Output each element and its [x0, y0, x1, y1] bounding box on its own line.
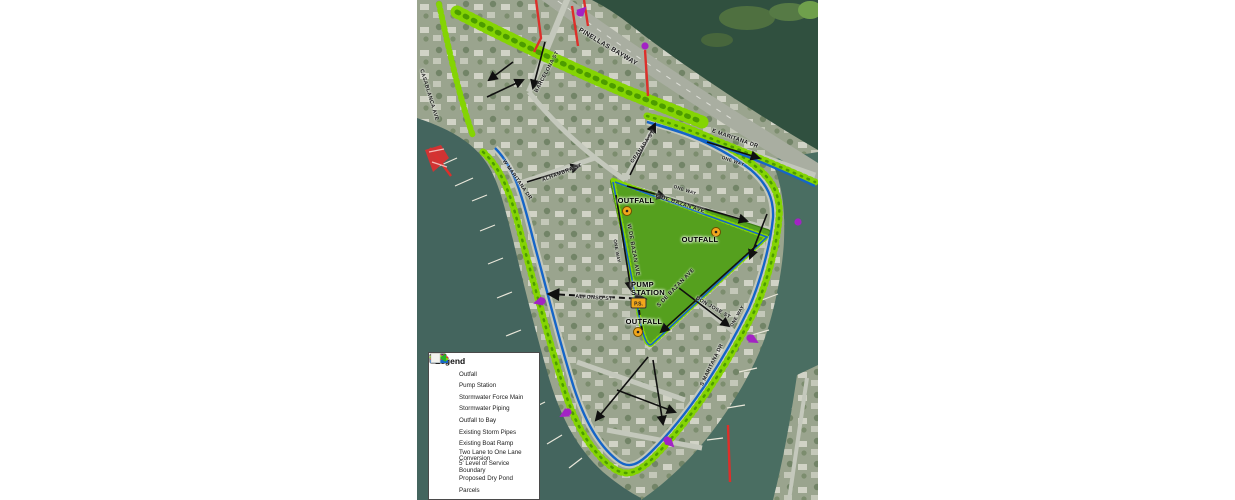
legend-item-outfall-to-bay: Outfall to Bay: [435, 415, 537, 427]
legend-item-label: Outfall: [459, 372, 477, 378]
legend-item-pump-station: P.S.Pump Station: [435, 381, 537, 393]
dry-pond-icon: [435, 474, 459, 484]
legend-item-5-level-of-service-boundary: 5' Level of Service Boundary: [435, 462, 537, 474]
storm-pipes-icon: [435, 428, 459, 438]
legend-item-existing-storm-pipes: Existing Storm Pipes: [435, 427, 537, 439]
parcels-icon: [435, 486, 459, 496]
svg-text:P.S.: P.S.: [634, 302, 643, 308]
screenshot-canvas: P.S. PINELLAS BAYWAYE MARITANA DRONE WAY…: [0, 0, 1235, 500]
legend-item-stormwater-piping: Stormwater Piping: [435, 404, 537, 416]
legend-item-label: Parcels: [459, 488, 480, 494]
legend-item-proposed-dry-pond: Proposed Dry Pond: [435, 473, 537, 485]
pump-station-marker: P.S.: [631, 298, 646, 308]
legend-item-label: 5' Level of Service Boundary: [459, 461, 537, 473]
force-main-icon: [435, 393, 459, 403]
outfall-icon: [435, 370, 459, 380]
legend-item-label: Stormwater Force Main: [459, 395, 523, 401]
legend-items: OutfallP.S.Pump StationStormwater Force …: [435, 369, 537, 497]
legend-item-outfall: Outfall: [435, 369, 537, 381]
lane-conversion-icon: [435, 451, 459, 461]
legend-item-label: Existing Storm Pipes: [459, 430, 516, 436]
los-boundary-icon: [435, 463, 459, 473]
legend-panel: Legend OutfallP.S.Pump StationStormwater…: [428, 352, 540, 500]
outfall-to-bay-icon: [435, 416, 459, 426]
pump-station-icon: P.S.: [435, 381, 459, 391]
piping-icon: [435, 405, 459, 415]
legend-item-label: Stormwater Piping: [459, 406, 510, 412]
legend-item-stormwater-force-main: Stormwater Force Main: [435, 392, 537, 404]
legend-item-label: Proposed Dry Pond: [459, 476, 513, 482]
legend-item-label: Existing Boat Ramp: [459, 441, 513, 447]
legend-item-label: Pump Station: [459, 383, 496, 389]
stormwater-plan-map: P.S. PINELLAS BAYWAYE MARITANA DRONE WAY…: [417, 0, 818, 500]
boat-ramp-icon: [435, 439, 459, 449]
legend-item-parcels: Parcels: [435, 485, 537, 497]
legend-item-label: Outfall to Bay: [459, 418, 496, 424]
